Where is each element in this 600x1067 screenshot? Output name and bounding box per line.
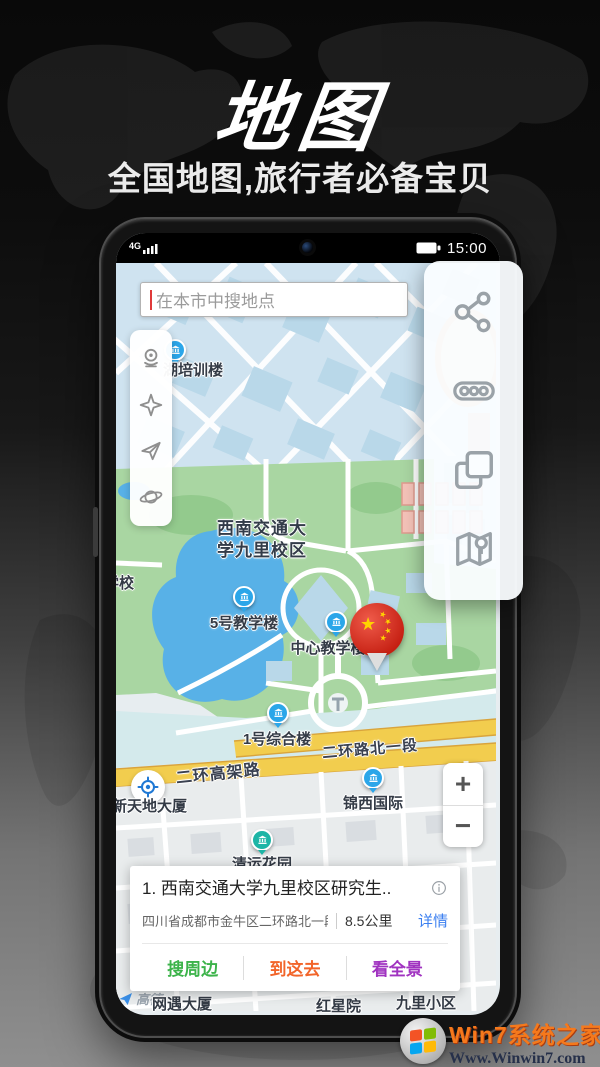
- map-label-building5: 5号教学楼: [210, 612, 278, 633]
- windows-logo-icon: [400, 1018, 446, 1064]
- map-location-button[interactable]: [450, 525, 498, 573]
- map-label-school: 学校: [116, 572, 134, 593]
- poi-marker-complex1[interactable]: [267, 702, 289, 724]
- building-icon: [256, 834, 269, 847]
- poi-marker-qingyun[interactable]: [251, 829, 273, 851]
- details-link[interactable]: 详情: [418, 910, 448, 931]
- result-distance: 8.5公里: [345, 911, 392, 931]
- result-address: 四川省成都市金牛区二环路北一段11..: [142, 911, 328, 930]
- network-status: 4G: [129, 242, 158, 254]
- search-placeholder: 在本市中搜地点: [156, 287, 275, 312]
- text-cursor: [150, 290, 152, 310]
- building-icon: [238, 591, 251, 604]
- compass-icon: [138, 392, 164, 418]
- panorama-button[interactable]: 看全景: [347, 955, 448, 980]
- poi-marker-jinxi[interactable]: [362, 767, 384, 789]
- pin-tail: [367, 653, 387, 671]
- building-icon: [272, 707, 285, 720]
- map-label-jinxi: 锦西国际: [343, 792, 403, 813]
- send-icon: [138, 438, 164, 464]
- poi-marker-central[interactable]: [325, 611, 347, 633]
- china-flag-pin-icon: ★ ★ ★ ★ ★: [350, 603, 404, 657]
- map-location-icon: [451, 526, 497, 572]
- building-icon: [330, 616, 343, 629]
- globe-button[interactable]: [137, 483, 165, 511]
- status-bar: 4G 15:00: [116, 233, 500, 263]
- map-label-complex1: 1号综合楼: [243, 728, 311, 749]
- go-here-button[interactable]: 到这去: [244, 955, 345, 980]
- share-button[interactable]: [450, 288, 498, 336]
- zoom-out-button[interactable]: −: [443, 805, 483, 848]
- battery-icon: [416, 242, 441, 254]
- map-label-yuda: 网遇大厦: [152, 993, 212, 1014]
- result-title: 1. 西南交通大学九里校区研究生..: [142, 879, 391, 899]
- compass-button[interactable]: [137, 391, 165, 419]
- selected-location-pin[interactable]: ★ ★ ★ ★ ★: [350, 603, 404, 671]
- clock: 15:00: [447, 240, 487, 257]
- map-label-hongxing: 红星院: [316, 995, 361, 1015]
- traffic-button[interactable]: [450, 367, 498, 415]
- site-watermark: Win7系统之家 Www.Winwin7.com: [400, 1016, 600, 1067]
- map-label-jiuli-estate: 九里小区: [396, 992, 456, 1013]
- building-icon: [367, 772, 380, 785]
- zoom-control: + −: [443, 763, 483, 847]
- search-input[interactable]: 在本市中搜地点: [140, 282, 408, 317]
- amap-plane-icon: [118, 991, 134, 1007]
- poster: 地图 全国地图,旅行者必备宝贝 4G 15:0: [0, 0, 600, 1067]
- layers-button[interactable]: [450, 446, 498, 494]
- streetview-icon: [138, 346, 164, 372]
- info-icon: [430, 879, 448, 897]
- search-nearby-button[interactable]: 搜周边: [142, 955, 243, 980]
- quick-actions-panel: [424, 261, 523, 600]
- map-label-campus-line2: 学九里校区: [217, 536, 307, 561]
- page-title: 地图: [0, 56, 600, 166]
- layers-icon: [451, 447, 497, 493]
- traffic-icon: [451, 368, 497, 414]
- map-tools-panel: [130, 330, 172, 526]
- network-type-label: 4G: [129, 241, 141, 251]
- info-button[interactable]: [430, 879, 448, 897]
- share-icon: [451, 289, 497, 335]
- streetview-button[interactable]: [137, 345, 165, 373]
- watermark-site-name: Win7系统之家: [449, 1016, 600, 1050]
- signal-bars-icon: [143, 242, 158, 254]
- planet-icon: [138, 484, 164, 510]
- poi-marker-building5[interactable]: [233, 586, 255, 608]
- watermark-site-url: Www.Winwin7.com: [449, 1050, 600, 1067]
- divider: [336, 913, 337, 929]
- navigate-button[interactable]: [137, 437, 165, 465]
- page-subtitle: 全国地图,旅行者必备宝贝: [0, 152, 600, 200]
- zoom-in-button[interactable]: +: [443, 763, 483, 805]
- volume-button: [93, 507, 98, 557]
- search-result-card: 1. 西南交通大学九里校区研究生.. 四川省成都市金牛区二环路北一段11.. 8…: [130, 866, 460, 991]
- front-camera: [302, 242, 313, 253]
- map-label-xintiandi: 新天地大厦: [116, 795, 187, 816]
